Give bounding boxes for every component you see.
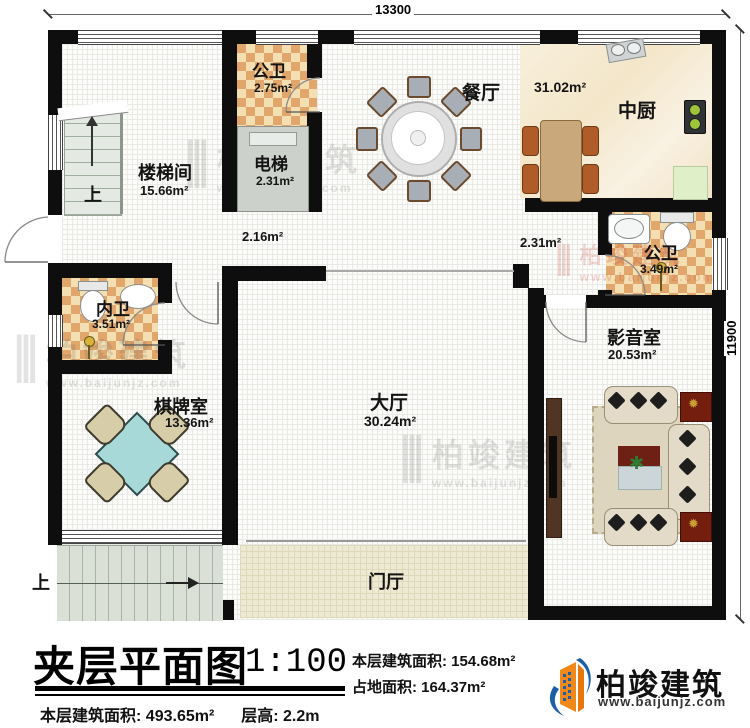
up-label: 上 bbox=[84, 186, 102, 205]
room-area: 13.36m² bbox=[165, 416, 213, 429]
chair bbox=[522, 164, 539, 194]
shower-stem bbox=[88, 345, 90, 359]
room-name: 楼梯间 bbox=[138, 164, 192, 183]
kitchen-sink-bowl bbox=[627, 42, 641, 54]
chair bbox=[582, 126, 599, 156]
site-area-row: 占地面积: 164.37m² bbox=[352, 676, 485, 697]
floor-plan-page: ⫼ 柏竣建筑www.baijunjz.com ⫼ 柏竣建筑www.baijunj… bbox=[0, 0, 750, 728]
dining-table-center bbox=[410, 130, 426, 146]
room-area: 3.49m² bbox=[640, 263, 678, 275]
stairs-rail bbox=[120, 110, 123, 214]
chair bbox=[407, 76, 431, 98]
up-label: 上 bbox=[32, 574, 50, 593]
site-area-value: 164.37m² bbox=[421, 679, 485, 696]
page-title: 夹层平面图 bbox=[33, 633, 248, 694]
room-name: 电梯 bbox=[254, 156, 288, 174]
total-area-label: 本层建筑面积: bbox=[40, 708, 141, 725]
tv-screen bbox=[549, 436, 557, 498]
chair bbox=[407, 180, 431, 202]
room-area: 2.31m² bbox=[520, 236, 561, 249]
room-area: 2.16m² bbox=[242, 230, 283, 243]
stove-burner bbox=[689, 118, 701, 130]
brand-url: www.baijunjz.com bbox=[598, 694, 726, 709]
floor-area-label: 本层建筑面积: bbox=[352, 653, 447, 670]
plant-icon: ✱ bbox=[629, 454, 644, 472]
sink-basin bbox=[614, 218, 644, 239]
side-table-plant-icon: ✹ bbox=[688, 397, 699, 410]
room-area: 3.51m² bbox=[92, 318, 130, 330]
scale-label: 1:100 bbox=[245, 644, 347, 682]
room-area: 2.75m² bbox=[254, 82, 292, 94]
height-value: 2.2m bbox=[283, 708, 319, 725]
stairs-arrow-tail bbox=[166, 582, 188, 584]
dimension-top: 13300 bbox=[372, 2, 414, 17]
room-area: 30.24m² bbox=[364, 414, 416, 428]
room-name: 公卫 bbox=[252, 63, 286, 81]
dimension-right: 11900 bbox=[724, 321, 739, 356]
floor-area-value: 154.68m² bbox=[451, 653, 515, 670]
room-area: 20.53m² bbox=[608, 348, 656, 361]
stairs-arrowhead-icon bbox=[86, 116, 98, 126]
kitchen-counter bbox=[673, 166, 708, 200]
chair bbox=[522, 126, 539, 156]
chair bbox=[582, 164, 599, 194]
elevator-cab-inner bbox=[249, 132, 297, 146]
stairs-arrowhead-icon bbox=[188, 577, 199, 589]
total-area-row: 本层建筑面积: 493.65m² 层高: 2.2m bbox=[40, 702, 319, 726]
room-area: 15.66m² bbox=[140, 184, 188, 197]
room-name: 大厅 bbox=[370, 394, 408, 414]
room-name: 餐厅 bbox=[462, 84, 500, 104]
stairs-arrow bbox=[91, 124, 93, 166]
height-label: 层高: bbox=[241, 708, 278, 725]
chair bbox=[356, 127, 378, 151]
room-name: 中厨 bbox=[618, 102, 656, 122]
title-underline-thin bbox=[35, 694, 345, 696]
dimension-line-right bbox=[740, 30, 741, 620]
floor-area-row: 本层建筑面积: 154.68m² bbox=[352, 650, 515, 671]
kitchen-table bbox=[540, 120, 582, 202]
total-area-value: 493.65m² bbox=[146, 708, 215, 725]
stove-burner bbox=[689, 104, 701, 116]
kitchen-sink-bowl bbox=[611, 44, 625, 56]
room-name: 门厅 bbox=[368, 573, 404, 592]
room-area: 31.02m² bbox=[534, 80, 586, 94]
room-name: 影音室 bbox=[607, 329, 661, 348]
title-underline bbox=[35, 686, 345, 691]
side-table-plant-icon: ✹ bbox=[688, 517, 699, 530]
brand-logo-icon bbox=[546, 656, 592, 718]
room-name: 公卫 bbox=[644, 245, 678, 263]
room-area: 2.31m² bbox=[256, 175, 294, 187]
site-area-label: 占地面积: bbox=[352, 679, 417, 696]
chair bbox=[460, 127, 482, 151]
